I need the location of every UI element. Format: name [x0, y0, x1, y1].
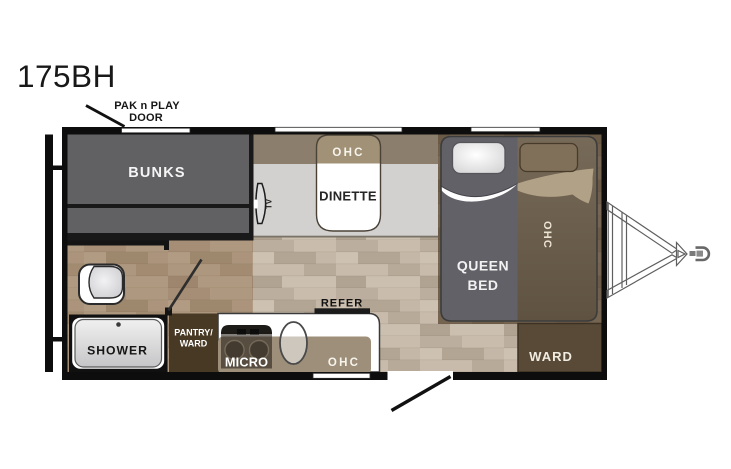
svg-text:OHC: OHC	[541, 221, 553, 249]
svg-text:REFER: REFER	[321, 298, 363, 310]
svg-text:175BH: 175BH	[17, 58, 116, 94]
svg-text:MICRO: MICRO	[225, 356, 268, 370]
svg-text:OHC: OHC	[328, 357, 360, 369]
svg-text:QUEEN: QUEEN	[457, 258, 509, 274]
svg-text:BED: BED	[467, 277, 498, 293]
svg-text:DINETTE: DINETTE	[319, 189, 377, 204]
svg-text:PAK n PLAY: PAK n PLAY	[114, 100, 180, 112]
svg-text:OHC: OHC	[332, 147, 364, 159]
svg-text:WARD: WARD	[529, 349, 573, 364]
svg-text:TV: TV	[265, 198, 274, 209]
svg-text:PANTRY/: PANTRY/	[174, 328, 213, 338]
svg-text:DOOR: DOOR	[129, 112, 163, 124]
svg-text:BUNKS: BUNKS	[128, 165, 186, 181]
svg-text:WARD: WARD	[180, 339, 208, 349]
svg-text:SHOWER: SHOWER	[87, 344, 148, 358]
